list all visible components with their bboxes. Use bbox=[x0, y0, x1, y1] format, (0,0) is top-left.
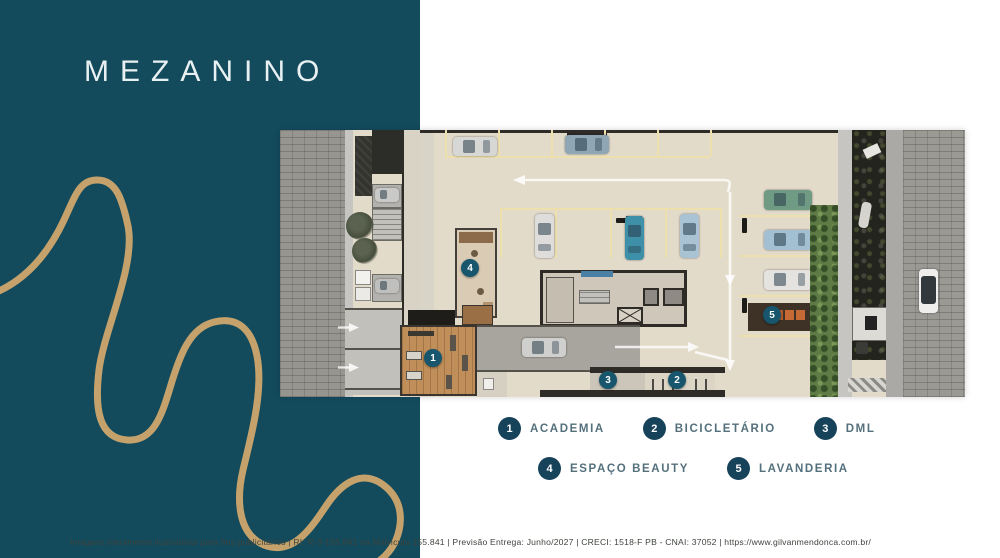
legend-item-bicicletario: 2 BICICLETÁRIO bbox=[643, 417, 776, 440]
parked-car-right-3 bbox=[764, 270, 812, 290]
wheel-stop bbox=[742, 218, 747, 233]
appliance-box-2 bbox=[355, 287, 371, 301]
plan-marker-5-number: 5 bbox=[769, 310, 775, 321]
parking-line bbox=[657, 130, 659, 156]
legend-circle-5: 5 bbox=[727, 457, 750, 480]
parked-car-garage-1 bbox=[375, 188, 399, 202]
legend-circle-2: 2 bbox=[643, 417, 666, 440]
plan-marker-1-number: 1 bbox=[430, 353, 436, 364]
bike-rack bbox=[662, 379, 664, 390]
wheel-stop bbox=[742, 298, 747, 313]
left-roof-b bbox=[372, 130, 402, 174]
legend-circle-1: 1 bbox=[498, 417, 521, 440]
entry-door bbox=[865, 316, 877, 330]
beauty-chair-1 bbox=[471, 250, 478, 257]
car-on-ramp bbox=[522, 338, 566, 357]
parked-car-garage-2 bbox=[375, 279, 399, 293]
shaft-x bbox=[619, 309, 641, 322]
core-block bbox=[540, 270, 687, 327]
parking-line bbox=[551, 130, 553, 156]
parking-line bbox=[740, 255, 812, 257]
parking-line bbox=[500, 208, 502, 258]
elevator-2 bbox=[663, 288, 684, 306]
small-room bbox=[483, 378, 494, 390]
elevator-1 bbox=[643, 288, 659, 306]
parking-line bbox=[555, 208, 557, 258]
parking-line bbox=[740, 295, 812, 297]
parked-car-top-1 bbox=[453, 137, 497, 156]
tree-1 bbox=[346, 212, 374, 240]
legend-item-lavanderia: 5 LAVANDERIA bbox=[727, 457, 849, 480]
beauty-desk bbox=[459, 232, 493, 243]
parking-line bbox=[610, 208, 612, 258]
plan-marker-3-number: 3 bbox=[605, 375, 611, 386]
beauty-chair-2 bbox=[477, 288, 484, 295]
parking-line bbox=[445, 156, 710, 158]
parking-line bbox=[498, 130, 500, 156]
parked-car-top-2 bbox=[565, 135, 609, 154]
legend-item-dml: 3 DML bbox=[814, 417, 876, 440]
plan-marker-2-number: 2 bbox=[674, 375, 680, 386]
bottom-wall bbox=[540, 390, 725, 397]
gym-machine-3 bbox=[446, 375, 452, 389]
washer-1 bbox=[785, 310, 794, 320]
legend-item-espaco-beauty: 4 ESPAÇO BEAUTY bbox=[538, 457, 689, 480]
crosswalk bbox=[848, 378, 886, 392]
plan-marker-5: 5 bbox=[763, 306, 781, 324]
page-title: MEZANINO bbox=[84, 55, 330, 89]
legend-item-academia: 1 ACADEMIA bbox=[498, 417, 605, 440]
gym-machine-1 bbox=[450, 335, 456, 351]
left-roof-a bbox=[355, 136, 372, 196]
left-street-paving bbox=[280, 130, 345, 397]
parked-car-mid-2 bbox=[625, 216, 644, 260]
left-stairwell bbox=[372, 208, 402, 241]
gym-bench-1 bbox=[406, 351, 422, 360]
left-driveway bbox=[345, 308, 403, 395]
gym-rack bbox=[408, 331, 434, 336]
bike-rack bbox=[652, 379, 654, 390]
driveway-divider-2 bbox=[345, 348, 403, 350]
right-walkway bbox=[838, 130, 852, 397]
shaft bbox=[617, 307, 643, 324]
bike-rack bbox=[705, 379, 707, 390]
driveway-divider-1 bbox=[345, 308, 403, 310]
parking-line bbox=[665, 208, 667, 258]
slide: MEZANINO bbox=[0, 0, 1000, 558]
hedge-strip bbox=[810, 205, 838, 397]
plan-marker-4-number: 4 bbox=[467, 263, 473, 274]
legend-label-dml: DML bbox=[846, 423, 876, 435]
parked-car-right-1 bbox=[764, 190, 812, 210]
top-wall bbox=[420, 130, 840, 133]
appliance-box-1 bbox=[355, 270, 371, 285]
right-curb-lane bbox=[886, 130, 903, 397]
parking-line bbox=[710, 130, 712, 156]
core-stairs bbox=[579, 290, 610, 304]
right-street-paving bbox=[903, 130, 965, 397]
parked-car-mid-1 bbox=[535, 214, 554, 258]
parking-line bbox=[740, 335, 812, 337]
legend-label-academia: ACADEMIA bbox=[530, 423, 605, 435]
gym-machine-2 bbox=[462, 355, 468, 371]
washer-2 bbox=[796, 310, 805, 320]
bike-rack bbox=[695, 379, 697, 390]
legend-circle-3: 3 bbox=[814, 417, 837, 440]
tree-2 bbox=[352, 238, 378, 264]
street-car-roof bbox=[921, 276, 936, 304]
parked-car-mid-3 bbox=[680, 214, 699, 258]
legend-label-bicicletario: BICICLETÁRIO bbox=[675, 423, 776, 435]
core-room bbox=[546, 277, 574, 323]
plan-marker-4: 4 bbox=[461, 259, 479, 277]
legend-circle-4: 4 bbox=[538, 457, 561, 480]
access-symbol bbox=[856, 342, 868, 354]
driveway-divider-3 bbox=[345, 388, 403, 390]
plan-marker-3: 3 bbox=[599, 371, 617, 389]
parked-car-right-2 bbox=[764, 230, 812, 250]
gym-bench-2 bbox=[406, 371, 422, 380]
parking-line bbox=[740, 215, 812, 217]
street-car bbox=[919, 269, 938, 313]
legend-label-espaco-beauty: ESPAÇO BEAUTY bbox=[570, 463, 689, 475]
entry-mat bbox=[581, 271, 613, 277]
plan-marker-2: 2 bbox=[668, 371, 686, 389]
parking-line bbox=[445, 130, 447, 156]
gym-counter bbox=[408, 310, 455, 325]
legend-row-1: 1 ACADEMIA 2 BICICLETÁRIO 3 DML bbox=[498, 417, 875, 440]
reception-desk bbox=[462, 305, 493, 325]
mezzanine-floorplan: 1 2 3 4 5 bbox=[280, 130, 965, 397]
parking-line bbox=[720, 208, 722, 258]
footer-disclaimer: Imagens meramente ilustrativas para fins… bbox=[70, 537, 950, 547]
plan-marker-1: 1 bbox=[424, 349, 442, 367]
legend-label-lavanderia: LAVANDERIA bbox=[759, 463, 849, 475]
legend-row-2: 4 ESPAÇO BEAUTY 5 LAVANDERIA bbox=[538, 457, 849, 480]
